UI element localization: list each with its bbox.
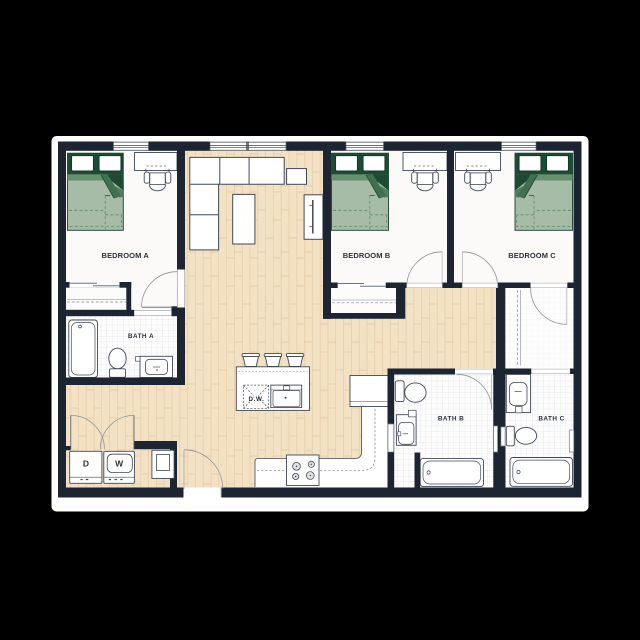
svg-text:BEDROOM A: BEDROOM A	[102, 251, 150, 260]
svg-text:BATH A: BATH A	[128, 333, 154, 340]
svg-text:BEDROOM C: BEDROOM C	[508, 251, 556, 260]
svg-text:D: D	[83, 459, 89, 469]
svg-text:BEDROOM B: BEDROOM B	[343, 251, 391, 260]
svg-text:W: W	[115, 459, 124, 469]
svg-text:BATH C: BATH C	[538, 415, 564, 422]
svg-text:BATH B: BATH B	[438, 416, 464, 423]
svg-text:D.W.: D.W.	[248, 396, 264, 403]
